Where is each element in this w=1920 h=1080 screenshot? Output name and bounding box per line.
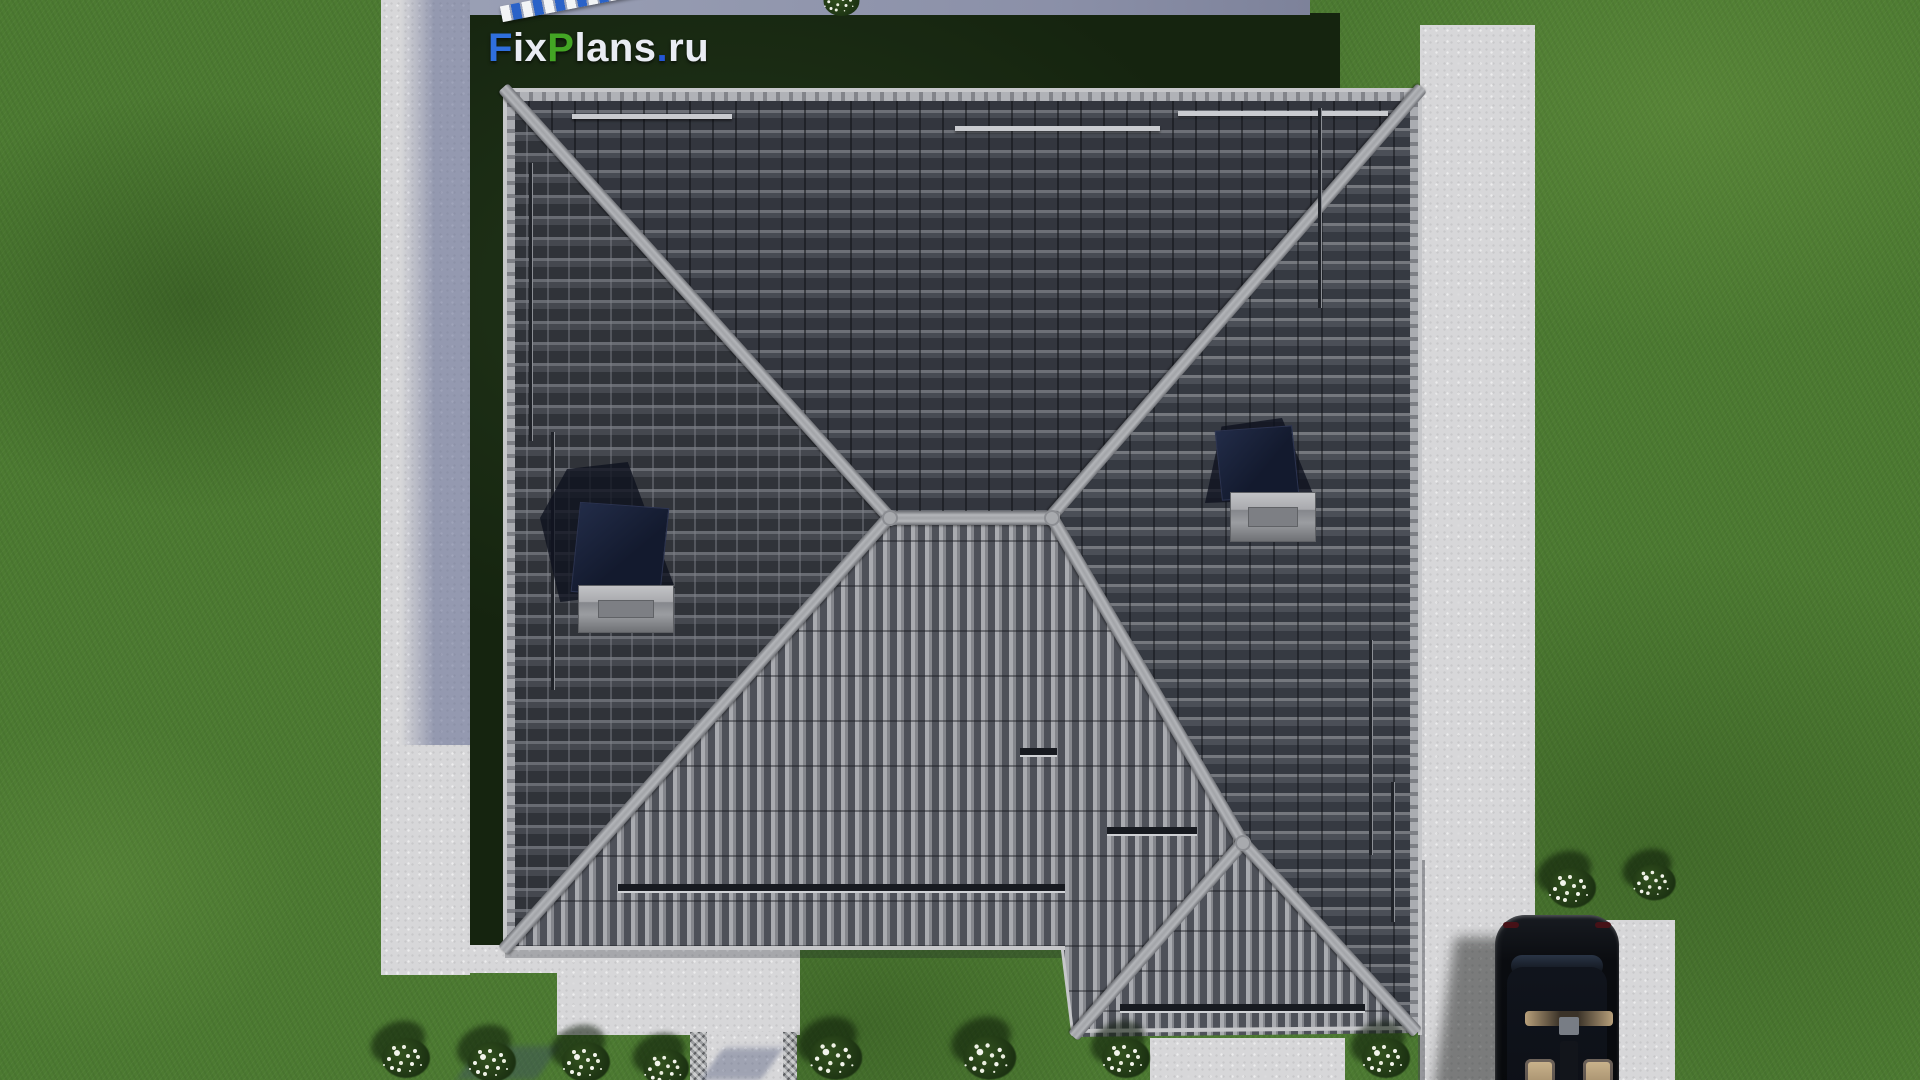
car-center-console [1560,1041,1578,1080]
fixplans-watermark: FixPlans.ru [488,26,709,71]
house-roof [505,90,1420,1037]
watermark-letter: F [488,26,513,70]
eave-course-right [1410,94,1418,1030]
watermark-letter: ix [513,26,547,70]
snow-guard-dark-bar [1120,1004,1365,1013]
car-console-screen [1559,1017,1579,1035]
roof-pipe [1391,782,1394,922]
fascia-left [503,90,507,950]
watermark-letter: . [657,26,669,70]
watermark-letter: lans [574,26,656,70]
driveway [1150,1038,1345,1080]
car-tail-light [1503,922,1519,928]
ridge-cap-garage [1235,835,1251,851]
watermark-letter: ru [668,26,709,70]
eave-course-top [507,92,1418,101]
roof-pipe [1318,108,1321,308]
car-seat-right [1583,1059,1613,1080]
car-body [1495,915,1619,1080]
ridge-cap-east [1044,510,1060,526]
fascia-bottom [505,946,1065,950]
snow-guard-dark-bar [1107,827,1197,836]
snow-guard-dark-bar [618,884,1065,893]
skylight-frame-east [1230,492,1316,542]
eave-course-left [507,94,515,946]
scene: FixPlans.ru [0,0,1920,1080]
car-seat-left [1525,1059,1555,1080]
fascia-right [1418,90,1422,1035]
skylight-glass-east [1215,425,1300,500]
ridge-cap-west [882,510,898,526]
main-ridge [884,511,1060,525]
car-tail-light [1595,922,1611,928]
snow-guard-bar [955,126,1160,131]
left-sidewalk-shadow [381,0,470,745]
skylight-frame-west [578,585,674,633]
car-cabin [1507,967,1607,1080]
watermark-letter: P [547,26,574,70]
snow-guard-dark-bar [1020,748,1057,757]
snow-guard-bar [572,114,732,119]
fascia-top [505,88,1420,92]
roof-pipe [529,163,532,441]
car [1495,915,1619,1080]
skylight-glass-west [571,502,670,598]
roof-pipe [1369,640,1372,855]
snow-guard-bar [1178,111,1388,116]
